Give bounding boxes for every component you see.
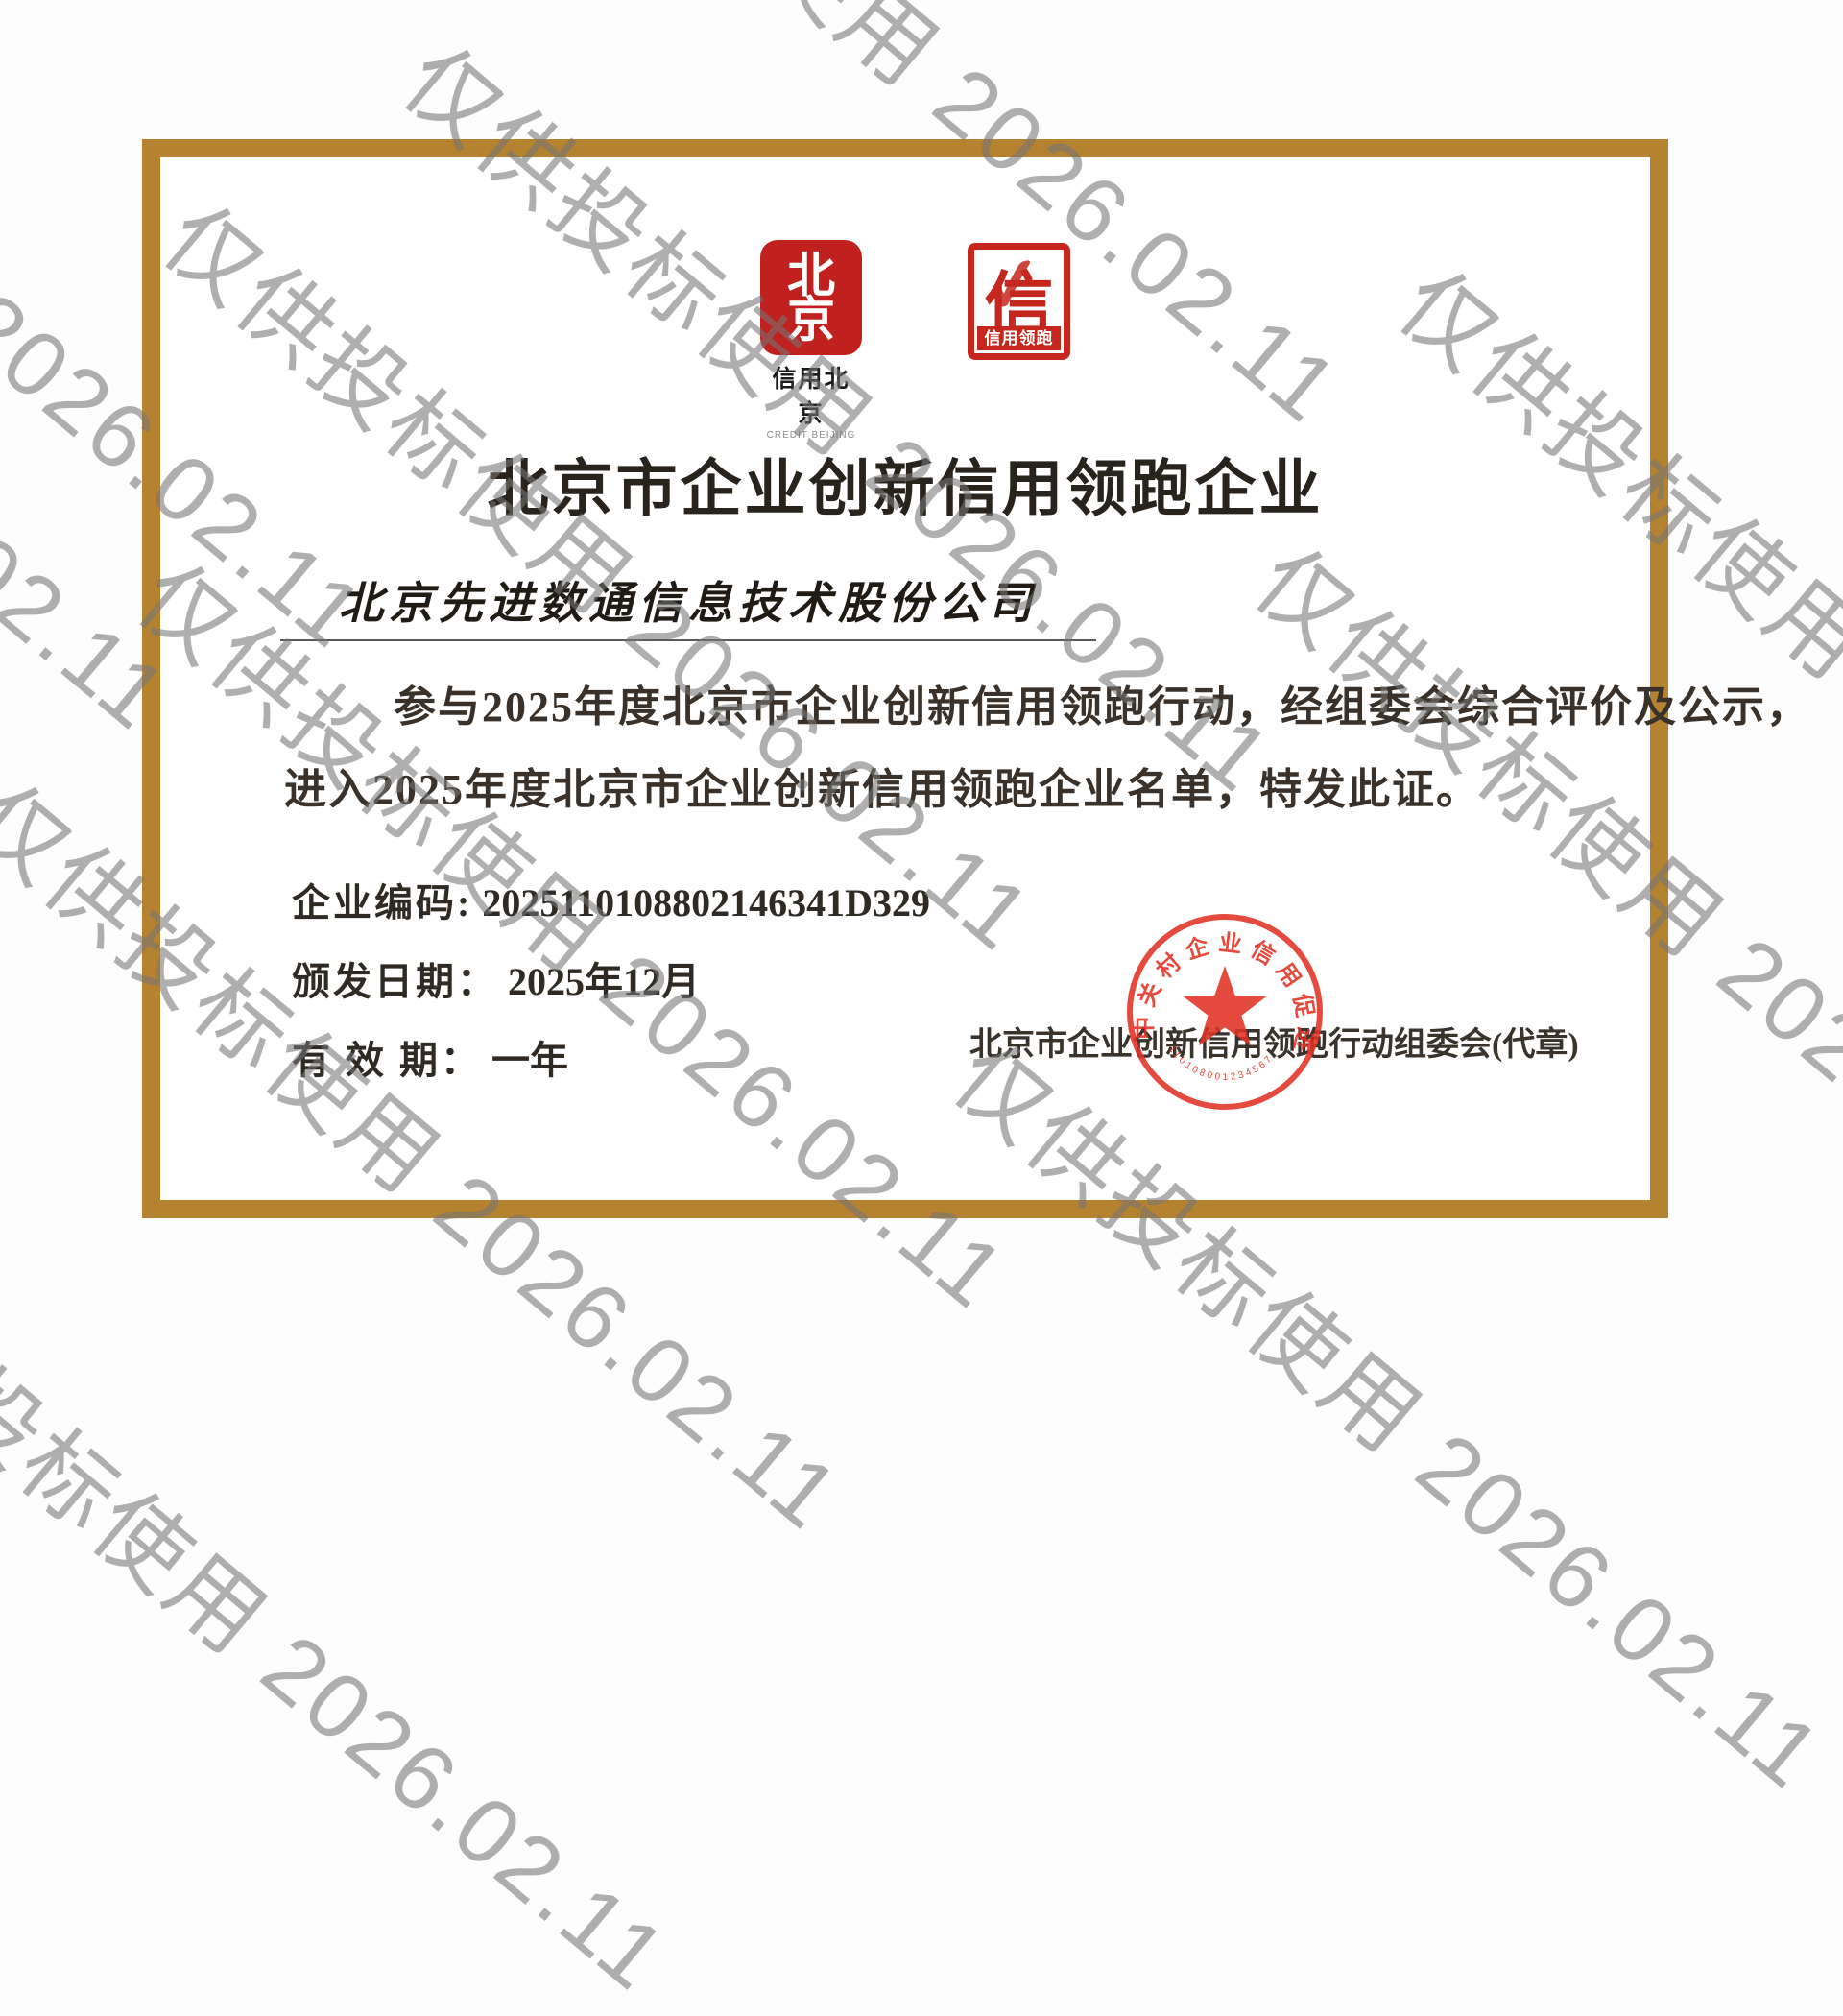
company-underline [280, 639, 1096, 641]
validity-value: 一年 [491, 1039, 568, 1082]
body-text-line2: 进入2025年度北京市企业创新信用领跑企业名单，特发此证。 [284, 755, 1480, 816]
logo-glyph-top: 北 [787, 253, 835, 298]
credit-leader-logo: 信 ✓ 信用领跑 [968, 243, 1070, 360]
validity-row: 有 效 期： 一年 [292, 1029, 568, 1085]
issue-date-value: 2025年12月 [508, 960, 700, 1003]
svg-text:110108001234567: 110108001234567 [1166, 1044, 1276, 1084]
body-text-line1: 参与2025年度北京市企业创新信用领跑行动，经组委会综合评价及公示， [394, 672, 1810, 733]
watermark-text: 仅供投标使用 2026.02.11 [0, 1208, 702, 2016]
credit-leader-band: 信用领跑 [977, 326, 1061, 350]
validity-label: 有 效 期： [292, 1039, 482, 1082]
credit-beijing-logo: 北 京 信用北京 CREDIT BEIJING [760, 240, 862, 441]
issue-date-row: 颁发日期： 2025年12月 [292, 950, 700, 1006]
enterprise-code-row: 企业编码: 2025110108802146341D329 [292, 872, 930, 927]
star-icon [1183, 966, 1266, 1045]
enterprise-code-label: 企业编码: [292, 881, 472, 924]
issue-date-label: 颁发日期： [292, 960, 498, 1003]
enterprise-code-value: 2025110108802146341D329 [482, 881, 930, 924]
logo-glyph-bottom: 京 [787, 298, 835, 342]
red-seal-stamp: 中关村企业信用促进会 110108001234567 [1123, 910, 1327, 1114]
certificate-title: 北京市企业创新信用领跑企业 [160, 440, 1650, 528]
credit-beijing-logo-icon: 北 京 [760, 240, 862, 355]
credit-beijing-label: 信用北京 [760, 360, 862, 429]
company-name: 北京先进数通信息技术股份公司 [280, 568, 1096, 632]
check-swoosh-icon: ✓ [976, 238, 1050, 333]
seal-serial-text: 110108001234567 [1166, 1044, 1276, 1084]
